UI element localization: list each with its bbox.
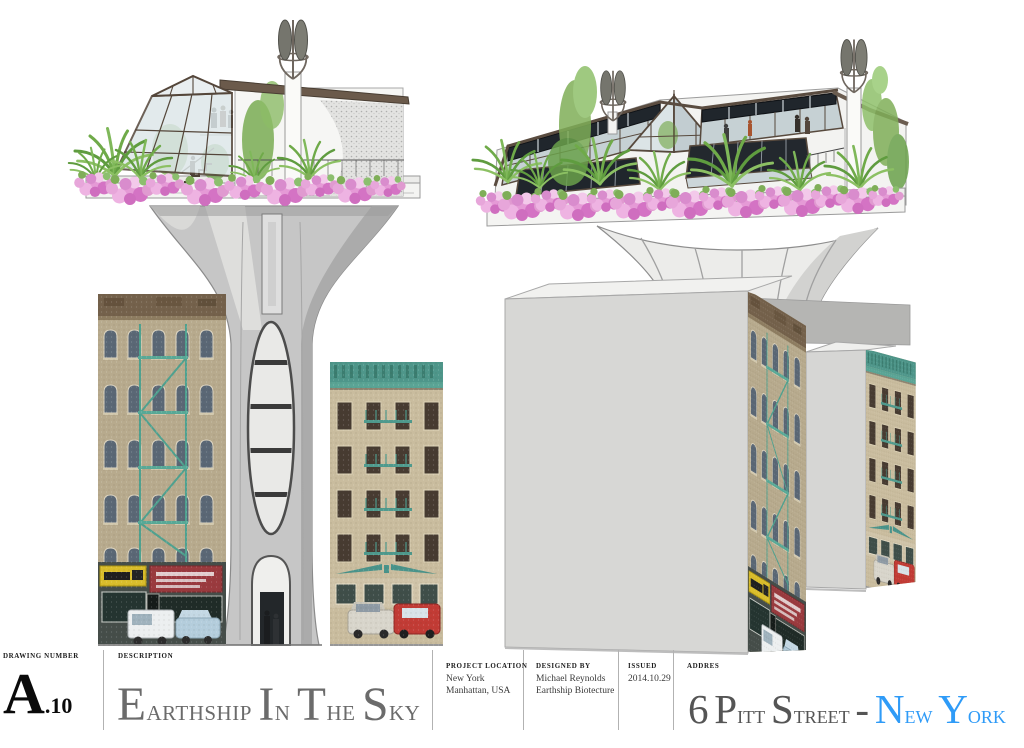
wind-turbine-perspective-2 [841, 40, 868, 93]
issued-value: 2014.10.29 [628, 673, 671, 685]
sheet-title: EarthshipInTheSky [117, 678, 427, 732]
project-location-label: PROJECT LOCATION [446, 662, 528, 670]
designed-by-value: Michael Reynolds Earthship Biotecture [536, 673, 614, 697]
greenhouse-perspective [495, 40, 909, 207]
drawing-sheet-artwork [0, 0, 1024, 660]
divider [103, 650, 104, 730]
description-label: DESCRIPTION [118, 652, 173, 660]
drawing-number-label: DRAWING NUMBER [3, 652, 79, 660]
issued-label: ISSUED [628, 662, 657, 670]
greenhouse-elevation [117, 20, 409, 196]
project-location-value: New York Manhattan, USA [446, 673, 510, 697]
address-street: 6PittStreet- [688, 700, 875, 729]
perspective-view [473, 40, 916, 661]
drawing-number-value: A.10 [3, 668, 72, 720]
title-block: DRAWING NUMBER A.10 DESCRIPTION Earthshi… [0, 648, 1024, 748]
box-photo-facade-b [866, 349, 916, 601]
building-photo-left [98, 294, 226, 646]
divider [432, 650, 433, 730]
building-photo-right [330, 362, 443, 646]
address-city: NewYork [875, 700, 1012, 729]
address-label: ADDRES [687, 662, 719, 670]
address-value: 6PittStreet-NewYork [688, 685, 1012, 733]
designed-by-label: DESIGNED BY [536, 662, 591, 670]
box-photo-facade-a [748, 290, 806, 660]
divider [673, 650, 674, 730]
elevation-view [69, 20, 443, 646]
wind-turbine-left-view [278, 20, 308, 79]
context-massing-boxes [505, 276, 916, 660]
wind-turbine-perspective-1 [600, 71, 626, 121]
divider [618, 650, 619, 730]
